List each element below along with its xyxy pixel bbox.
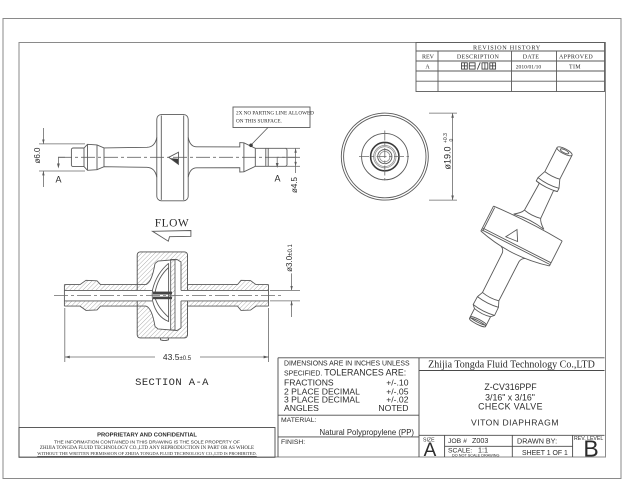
svg-text:TIM: TIM xyxy=(569,64,581,70)
svg-text:FINISH:: FINISH: xyxy=(281,439,305,446)
svg-text:VITON DIAPHRAGM: VITON DIAPHRAGM xyxy=(471,418,559,428)
svg-text:A: A xyxy=(424,440,437,461)
svg-text:SHEET 1 OF 1: SHEET 1 OF 1 xyxy=(522,450,568,457)
svg-text:DIMENSIONS ARE IN INCHES UNLES: DIMENSIONS ARE IN INCHES UNLESS xyxy=(284,361,410,368)
svg-text:B: B xyxy=(583,436,598,462)
svg-text:Z-CV316PPF: Z-CV316PPF xyxy=(484,382,537,392)
svg-text:2010/01/10: 2010/01/10 xyxy=(516,64,542,70)
svg-text:REV: REV xyxy=(422,54,435,60)
svg-text:REVISION HISTORY: REVISION HISTORY xyxy=(473,44,541,51)
svg-text:DRAWN BY:: DRAWN BY: xyxy=(517,437,557,446)
svg-text:PROPRIETARY AND CONFIDENTIAL: PROPRIETARY AND CONFIDENTIAL xyxy=(97,433,197,439)
svg-text:Z003: Z003 xyxy=(472,436,488,445)
svg-text:ø6.0: ø6.0 xyxy=(33,147,42,164)
svg-text:A: A xyxy=(425,65,430,71)
svg-text:Zhijia Tongda Fluid Technology: Zhijia Tongda Fluid Technology Co.,LTD xyxy=(428,360,595,371)
svg-text:MATERIAL:: MATERIAL: xyxy=(281,417,316,424)
svg-text:SECTION A-A: SECTION A-A xyxy=(135,377,209,389)
svg-text:APPROVED: APPROVED xyxy=(559,54,593,60)
svg-text:A: A xyxy=(274,174,280,184)
svg-text:2X NO PARTING LINE ALLOWED: 2X NO PARTING LINE ALLOWED xyxy=(236,111,314,117)
svg-text:ANGLES: ANGLES xyxy=(284,403,319,413)
svg-text:0: 0 xyxy=(449,139,455,142)
svg-text:CHECK VALVE: CHECK VALVE xyxy=(478,401,543,411)
svg-text:ON THIS SURFACE.: ON THIS SURFACE. xyxy=(236,119,282,125)
svg-text:FLOW: FLOW xyxy=(155,217,190,229)
svg-text:ø4.5: ø4.5 xyxy=(290,176,299,193)
svg-text:A: A xyxy=(55,175,61,185)
svg-text:DESCRIPTION: DESCRIPTION xyxy=(457,54,500,60)
svg-text:ø19.0: ø19.0 xyxy=(443,146,453,169)
svg-text:DATE: DATE xyxy=(523,54,540,60)
svg-text:JOB #: JOB # xyxy=(448,438,467,445)
svg-text:Natural Polypropylene (PP): Natural Polypropylene (PP) xyxy=(320,428,415,437)
svg-text:DO NOT SCALE DRAWING: DO NOT SCALE DRAWING xyxy=(452,453,500,457)
svg-text:THE INFORMATION CONTAINED IN T: THE INFORMATION CONTAINED IN THIS DRAWIN… xyxy=(54,439,240,445)
svg-text:NOTED: NOTED xyxy=(378,403,408,413)
